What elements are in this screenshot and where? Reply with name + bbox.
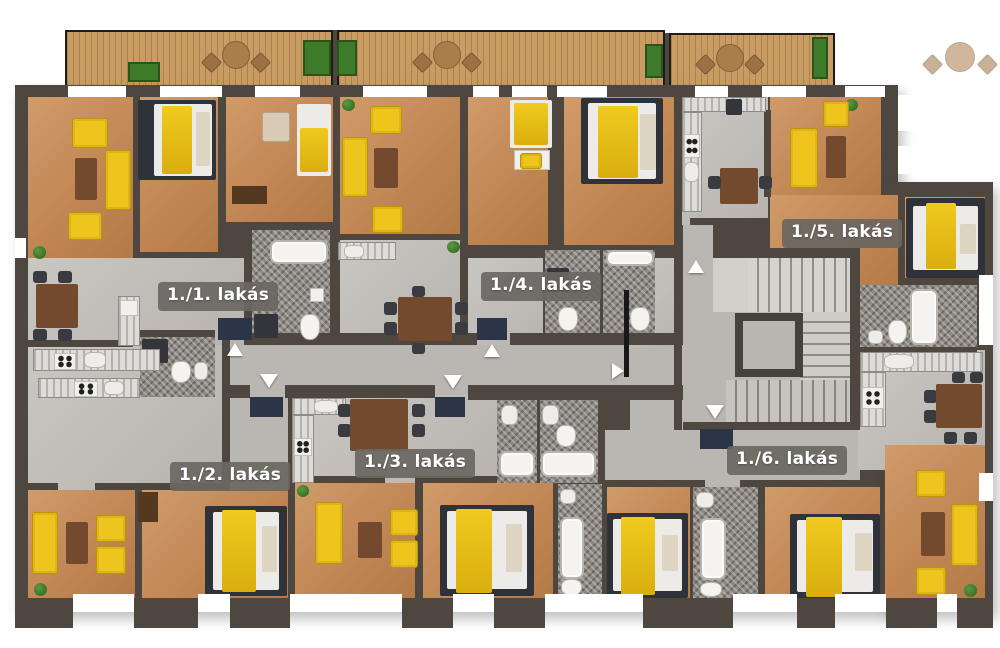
wall bbox=[690, 218, 768, 225]
dining-chair bbox=[708, 176, 721, 189]
bathtub bbox=[606, 250, 654, 266]
blanket bbox=[621, 517, 655, 595]
armchair bbox=[823, 101, 849, 127]
wall bbox=[333, 85, 340, 345]
wall bbox=[674, 85, 682, 430]
dining-table bbox=[398, 297, 452, 341]
pillow bbox=[262, 526, 277, 572]
toilet bbox=[558, 307, 578, 331]
plant bbox=[34, 583, 47, 596]
armchair bbox=[72, 118, 108, 148]
apartment-label-4: 1./4. lakás bbox=[481, 272, 601, 301]
window bbox=[512, 86, 547, 97]
window bbox=[733, 594, 797, 612]
toilet bbox=[300, 314, 320, 340]
wall bbox=[468, 385, 683, 400]
window bbox=[15, 238, 26, 258]
terrace-chair bbox=[977, 54, 998, 75]
wall bbox=[510, 333, 683, 345]
pillow bbox=[960, 224, 976, 254]
plant bbox=[342, 99, 355, 111]
tv-stand bbox=[826, 136, 846, 178]
dining-table bbox=[350, 399, 408, 451]
armchair bbox=[96, 546, 126, 574]
planter bbox=[303, 40, 331, 76]
toilet bbox=[700, 582, 722, 597]
sink bbox=[314, 400, 338, 413]
sink bbox=[501, 405, 518, 425]
sink bbox=[104, 381, 124, 395]
armchair bbox=[916, 567, 946, 595]
plant bbox=[297, 485, 309, 497]
dining-chair bbox=[759, 176, 772, 189]
dining-chair bbox=[33, 271, 47, 283]
dining-chair bbox=[952, 372, 965, 383]
window bbox=[937, 594, 957, 612]
toilet bbox=[888, 320, 907, 344]
window bbox=[473, 86, 499, 97]
terrace-table bbox=[222, 41, 250, 69]
armchair bbox=[372, 206, 403, 233]
window bbox=[557, 86, 607, 97]
dining-table bbox=[936, 384, 982, 428]
blanket bbox=[514, 103, 548, 145]
dining-chair bbox=[964, 432, 977, 444]
desk-chair bbox=[520, 153, 542, 169]
wall bbox=[218, 97, 226, 258]
apartment-label-5: 1./5. lakás bbox=[782, 219, 902, 248]
dining-table bbox=[36, 284, 78, 328]
stairs-lower-run bbox=[726, 380, 852, 422]
wall bbox=[850, 248, 860, 430]
direction-arrow-down bbox=[706, 405, 724, 419]
toilet bbox=[630, 307, 650, 331]
cooktop bbox=[684, 134, 700, 158]
sink bbox=[194, 362, 208, 380]
sofa bbox=[32, 512, 58, 574]
wall-pier bbox=[134, 612, 198, 628]
floor-plan: 1./1. lakás 1./2. lakás 1./3. lakás 1./4… bbox=[0, 0, 1000, 648]
wall-pier bbox=[886, 612, 937, 628]
kitchen-counter bbox=[682, 97, 766, 112]
dining-chair bbox=[412, 343, 425, 354]
wall-pier bbox=[494, 612, 545, 628]
wall bbox=[713, 248, 852, 258]
dining-chair bbox=[970, 372, 983, 383]
window bbox=[979, 473, 993, 501]
dining-chair bbox=[58, 271, 72, 283]
sink bbox=[344, 245, 364, 258]
dining-chair bbox=[412, 424, 425, 437]
window bbox=[695, 86, 728, 97]
dining-chair bbox=[33, 329, 47, 341]
kitchen-counter bbox=[860, 352, 983, 372]
blanket bbox=[598, 106, 638, 178]
dining-chair bbox=[944, 432, 957, 444]
wall bbox=[337, 234, 463, 240]
stairs-upper-run bbox=[748, 258, 852, 312]
armchair bbox=[916, 470, 946, 497]
sink bbox=[542, 405, 559, 425]
sofa bbox=[315, 502, 343, 564]
bathtub bbox=[270, 240, 328, 264]
stairs-side-run bbox=[800, 312, 852, 380]
planter bbox=[645, 44, 663, 78]
planter bbox=[337, 40, 357, 76]
shelf bbox=[310, 288, 324, 302]
wall bbox=[553, 483, 558, 598]
window bbox=[68, 86, 126, 97]
sink bbox=[684, 162, 699, 182]
window bbox=[198, 594, 230, 612]
dining-chair bbox=[384, 302, 397, 315]
plant bbox=[964, 584, 977, 597]
wall bbox=[28, 483, 58, 490]
cooktop bbox=[74, 381, 98, 397]
shower bbox=[254, 314, 278, 338]
bathtub bbox=[910, 289, 938, 345]
terrace-table bbox=[716, 44, 744, 72]
coffee-table bbox=[374, 148, 398, 188]
dining-chair bbox=[455, 302, 468, 315]
fridge bbox=[726, 99, 742, 115]
toilet bbox=[171, 361, 191, 383]
doormat bbox=[435, 397, 465, 417]
planter bbox=[128, 62, 160, 82]
direction-arrow-up bbox=[688, 260, 704, 273]
doormat bbox=[477, 318, 507, 340]
window bbox=[545, 594, 643, 612]
wall bbox=[556, 97, 564, 245]
coffee-table bbox=[358, 522, 382, 558]
planter bbox=[812, 37, 828, 79]
wall-pier bbox=[402, 612, 453, 628]
elevator-cab bbox=[743, 321, 795, 369]
wall bbox=[133, 330, 215, 337]
window bbox=[845, 86, 885, 97]
pillow bbox=[196, 112, 210, 166]
sink bbox=[696, 492, 714, 508]
direction-arrow-up bbox=[227, 343, 243, 356]
apartment-label-1: 1./1. lakás bbox=[158, 282, 278, 311]
sofa bbox=[951, 504, 978, 566]
window bbox=[835, 594, 886, 612]
bathtub bbox=[560, 517, 584, 579]
wall-pier bbox=[797, 612, 835, 628]
wall bbox=[285, 385, 435, 398]
terrace-table bbox=[433, 41, 461, 69]
blanket bbox=[300, 128, 328, 172]
terrace-chair bbox=[922, 54, 943, 75]
dining-chair bbox=[58, 329, 72, 341]
dining-chair bbox=[412, 286, 425, 297]
pillow bbox=[506, 524, 522, 572]
armchair bbox=[262, 112, 290, 142]
coffee-table bbox=[921, 512, 945, 556]
window bbox=[160, 86, 222, 97]
terrace-deck bbox=[65, 30, 333, 88]
window bbox=[73, 594, 134, 612]
wardrobe bbox=[232, 186, 267, 204]
window bbox=[290, 594, 402, 612]
toilet bbox=[556, 425, 576, 447]
sofa bbox=[790, 128, 818, 188]
terrace-deck bbox=[337, 30, 665, 88]
blanket bbox=[456, 509, 492, 593]
coffee-table bbox=[66, 522, 88, 564]
window bbox=[255, 86, 300, 97]
appliance bbox=[120, 300, 138, 316]
doormat bbox=[218, 318, 252, 340]
apartment-label-2: 1./2. lakás bbox=[170, 462, 290, 491]
wall-pier bbox=[643, 612, 733, 628]
wardrobe bbox=[138, 492, 158, 522]
coffee-table bbox=[75, 158, 97, 200]
blanket bbox=[806, 517, 842, 597]
dining-chair bbox=[412, 404, 425, 417]
pillow bbox=[662, 535, 678, 571]
armchair bbox=[68, 212, 102, 240]
wall bbox=[740, 480, 860, 487]
armchair bbox=[390, 509, 418, 536]
dining-table bbox=[720, 168, 758, 204]
direction-arrow-right bbox=[612, 363, 624, 379]
terrace-divider bbox=[665, 33, 669, 88]
bathtub bbox=[541, 451, 596, 477]
direction-arrow-up bbox=[484, 344, 500, 357]
plant bbox=[447, 241, 460, 253]
sink bbox=[84, 352, 106, 368]
sofa bbox=[105, 150, 131, 210]
stair-corridor bbox=[683, 225, 713, 430]
terrace-table bbox=[945, 42, 975, 72]
stairs-landing bbox=[713, 258, 748, 312]
blanket bbox=[222, 510, 256, 592]
bathtub bbox=[700, 518, 726, 580]
pillow bbox=[855, 533, 872, 571]
dining-chair bbox=[384, 322, 397, 335]
armchair bbox=[96, 515, 126, 542]
cooktop bbox=[862, 387, 884, 409]
pillow bbox=[640, 114, 656, 170]
armchair bbox=[370, 106, 402, 134]
wall-pier bbox=[15, 612, 73, 628]
wall bbox=[230, 385, 250, 398]
wall bbox=[226, 222, 333, 230]
apartment-label-6: 1./6. lakás bbox=[727, 446, 847, 475]
sink bbox=[560, 489, 576, 504]
window bbox=[762, 86, 806, 97]
cooktop bbox=[294, 438, 312, 456]
wall bbox=[605, 480, 705, 487]
wall bbox=[133, 252, 225, 258]
fire-door-line bbox=[624, 290, 629, 377]
apartment-label-3: 1./3. lakás bbox=[355, 449, 475, 478]
stove bbox=[54, 353, 76, 370]
blanket bbox=[162, 106, 192, 174]
plant bbox=[33, 246, 46, 259]
window bbox=[453, 594, 494, 612]
bathtub bbox=[499, 451, 535, 477]
direction-arrow-down bbox=[444, 375, 462, 389]
wall-pier bbox=[957, 612, 993, 628]
dining-chair bbox=[455, 322, 468, 335]
window bbox=[979, 275, 993, 345]
sink bbox=[868, 330, 883, 344]
window-sill bbox=[898, 146, 920, 174]
armchair bbox=[390, 540, 418, 568]
doormat bbox=[250, 397, 283, 417]
blanket bbox=[926, 203, 956, 269]
sink bbox=[884, 354, 914, 369]
sofa bbox=[342, 137, 368, 197]
wall-pier bbox=[230, 612, 290, 628]
direction-arrow-down bbox=[260, 374, 278, 388]
window-sill bbox=[898, 95, 920, 131]
window bbox=[363, 86, 427, 97]
